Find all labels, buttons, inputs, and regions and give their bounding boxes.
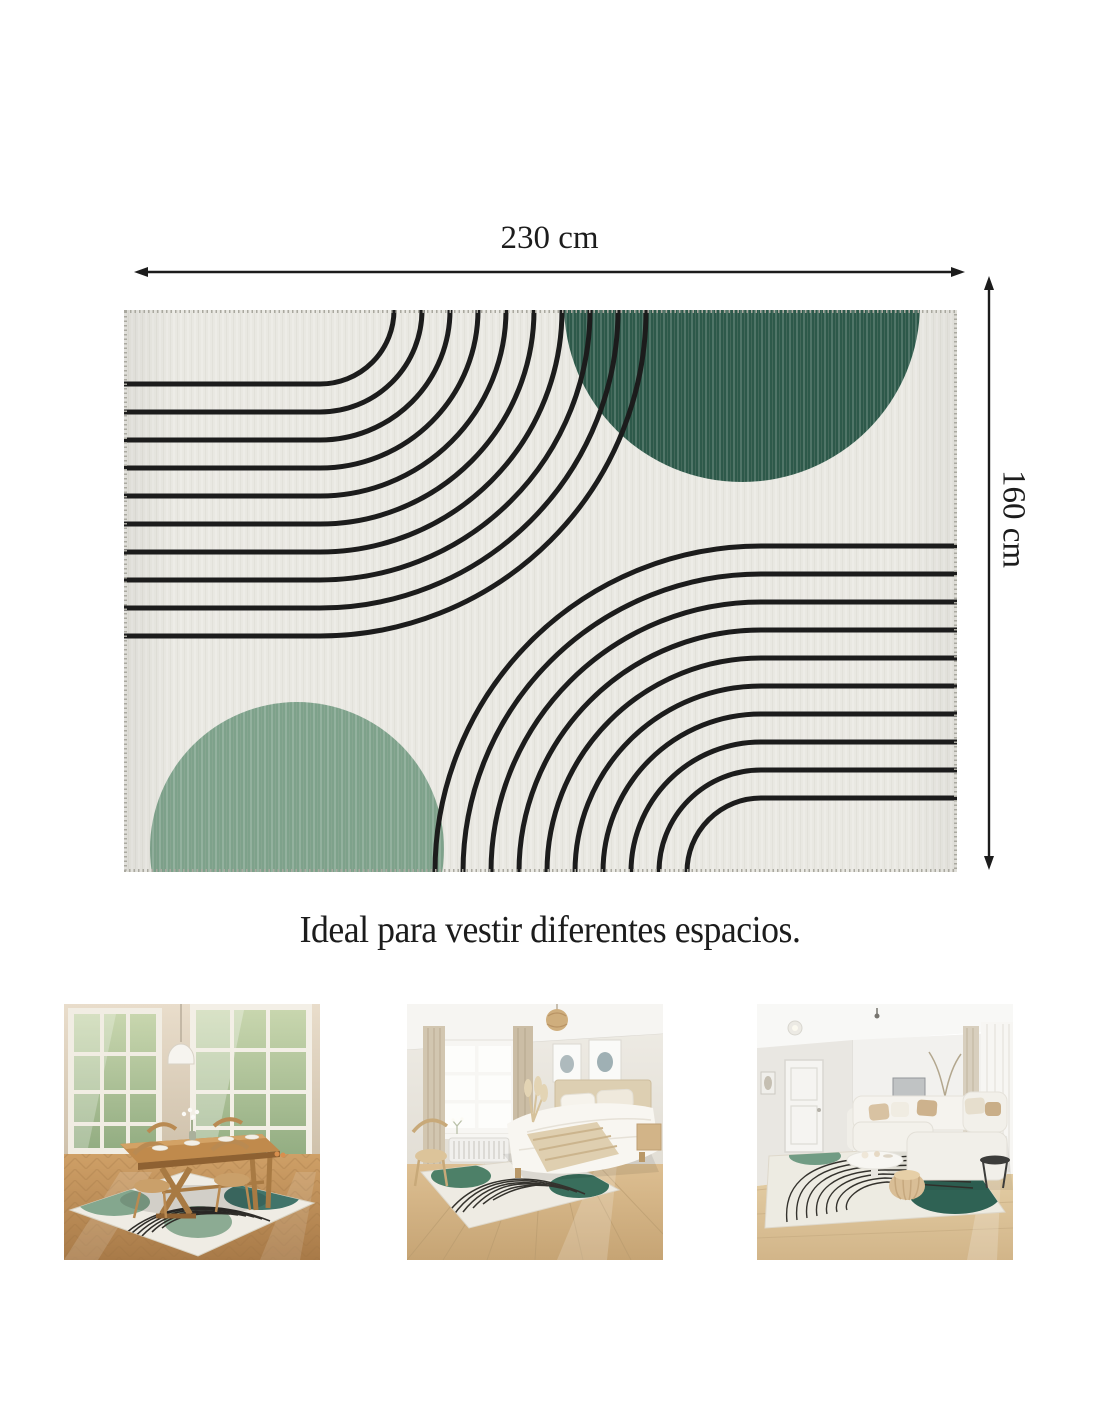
rug-product-image — [124, 310, 957, 872]
arrow-down-icon — [984, 856, 994, 870]
track-light — [875, 1014, 880, 1019]
hallway-frame — [761, 1072, 775, 1094]
caption: Ideal para vestir diferentes espacios. — [33, 908, 1067, 952]
thumbnail-bedroom — [407, 1004, 663, 1260]
product-image-canvas: 230 cm 160 cm — [0, 0, 1100, 1422]
window-left — [68, 1008, 162, 1154]
vertical-dimension-arrow — [981, 276, 997, 870]
thumbnail-dining-room — [64, 1004, 320, 1260]
dining-room-photo — [64, 1004, 320, 1260]
arrow-right-icon — [951, 267, 965, 277]
horizontal-dimension-arrow — [134, 264, 965, 280]
radiator — [449, 1138, 509, 1162]
knitted-pouf — [889, 1170, 925, 1200]
bedroom-photo — [407, 1004, 663, 1260]
arrow-left-icon — [134, 267, 148, 277]
bedroom-window — [437, 1040, 519, 1139]
arrow-up-icon — [984, 276, 994, 290]
nightstand — [637, 1124, 661, 1150]
thumbnail-living-room — [757, 1004, 1013, 1260]
living-room-photo — [757, 1004, 1013, 1260]
hallway-door — [785, 1060, 823, 1152]
width-dimension-label: 230 cm — [134, 220, 965, 257]
height-dimension-label: 160 cm — [995, 470, 1032, 568]
